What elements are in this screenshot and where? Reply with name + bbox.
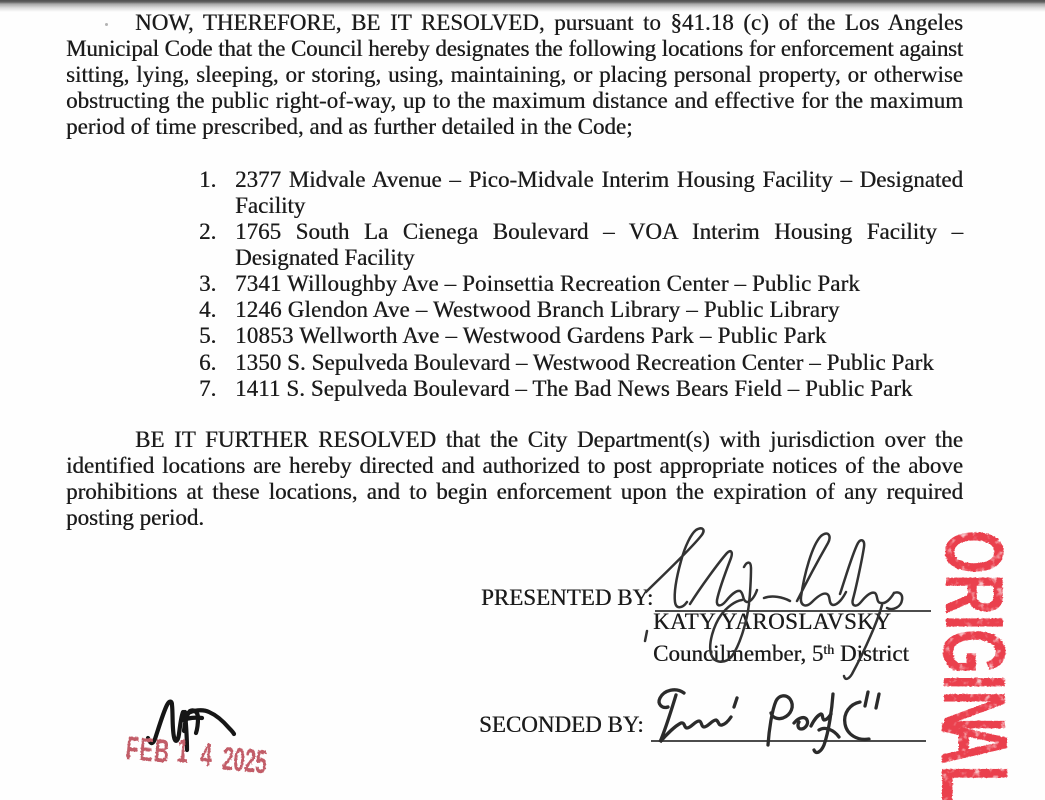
svg-text:AL: AL bbox=[922, 721, 1028, 800]
svg-text:ORI: ORI bbox=[927, 530, 1019, 630]
svg-text:4: 4 bbox=[199, 736, 214, 774]
svg-text:FEB: FEB bbox=[124, 729, 172, 770]
svg-text:1: 1 bbox=[175, 732, 190, 770]
svg-text:2025: 2025 bbox=[221, 740, 268, 781]
svg-text:GIN: GIN bbox=[925, 629, 1023, 732]
